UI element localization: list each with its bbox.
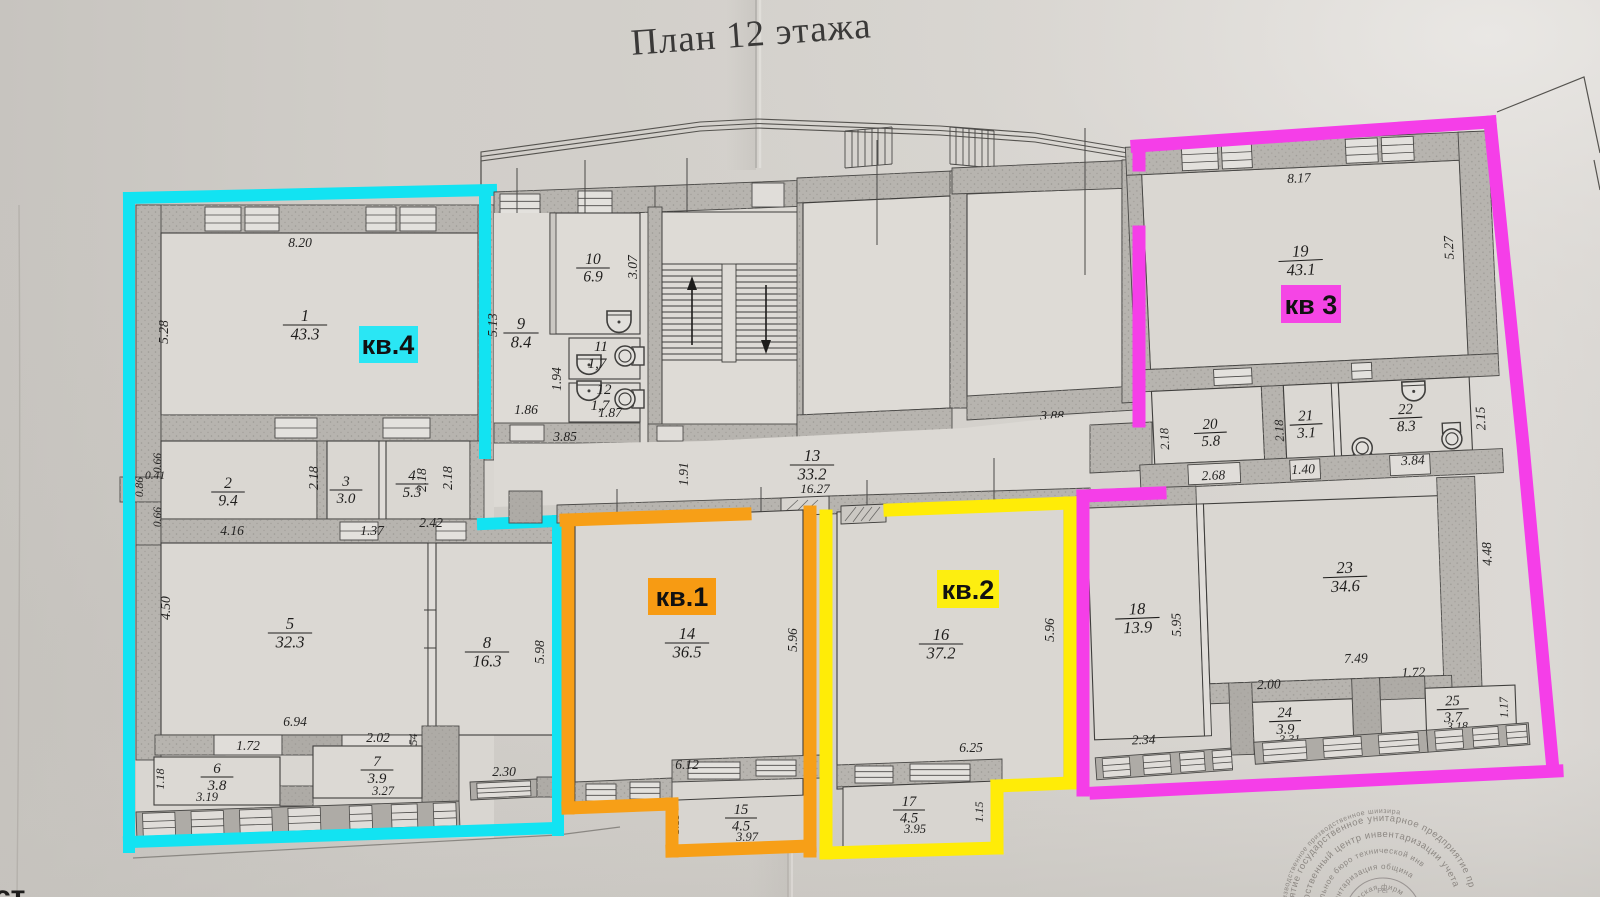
svg-text:6: 6 [213, 761, 221, 777]
svg-text:кв 3: кв 3 [1285, 290, 1338, 320]
svg-text:22: 22 [1398, 402, 1414, 419]
svg-text:5.13: 5.13 [485, 313, 500, 337]
svg-text:16.27: 16.27 [800, 481, 830, 496]
svg-text:23: 23 [1336, 558, 1353, 578]
svg-text:3.84: 3.84 [1400, 452, 1426, 468]
svg-text:4.48: 4.48 [1479, 542, 1495, 566]
svg-text:2.15: 2.15 [1472, 406, 1488, 431]
svg-text:25: 25 [1445, 693, 1460, 709]
svg-text:3.07: 3.07 [625, 254, 640, 280]
svg-text:5.98: 5.98 [532, 640, 547, 664]
svg-text:2.30: 2.30 [492, 764, 516, 779]
svg-text:2.18: 2.18 [1157, 427, 1172, 450]
svg-text:4.50: 4.50 [158, 596, 173, 620]
svg-text:7.49: 7.49 [1344, 650, 1368, 666]
svg-text:2.18: 2.18 [1272, 419, 1287, 442]
svg-text:кв.4: кв.4 [362, 330, 415, 360]
svg-text:5: 5 [286, 614, 294, 633]
svg-text:1.18: 1.18 [153, 769, 167, 790]
svg-text:14: 14 [679, 624, 696, 643]
svg-text:12: 12 [597, 382, 613, 398]
svg-text:кв.2: кв.2 [942, 575, 995, 605]
svg-text:20: 20 [1202, 416, 1218, 433]
svg-text:9.4: 9.4 [218, 493, 238, 510]
svg-text:0.86: 0.86 [134, 477, 146, 497]
svg-text:16.3: 16.3 [473, 652, 502, 671]
svg-text:5.28: 5.28 [156, 320, 171, 344]
svg-text:43.1: 43.1 [1286, 259, 1316, 279]
svg-text:1,7: 1,7 [588, 356, 608, 372]
svg-text:37.2: 37.2 [926, 644, 956, 663]
svg-text:16: 16 [933, 625, 950, 644]
svg-text:2.68: 2.68 [1201, 467, 1226, 483]
svg-text:8.4: 8.4 [511, 333, 532, 352]
svg-text:11: 11 [594, 339, 608, 355]
svg-text:3.85: 3.85 [552, 429, 577, 444]
svg-text:5.96: 5.96 [785, 628, 800, 652]
svg-text:1.15: 1.15 [972, 802, 986, 823]
svg-text:8.20: 8.20 [288, 235, 312, 250]
svg-text:1.17: 1.17 [1496, 696, 1511, 718]
svg-text:3.0: 3.0 [336, 491, 356, 507]
svg-text:1.40: 1.40 [1291, 461, 1316, 477]
svg-text:8.3: 8.3 [1397, 418, 1416, 435]
svg-text:6.12: 6.12 [675, 757, 699, 772]
svg-text:13: 13 [804, 446, 821, 465]
svg-text:9: 9 [517, 314, 525, 333]
svg-text:5.96: 5.96 [1042, 618, 1057, 642]
svg-text:5.95: 5.95 [1168, 613, 1184, 637]
svg-text:21: 21 [1298, 408, 1314, 425]
svg-text:13.9: 13.9 [1123, 617, 1153, 637]
svg-text:6.25: 6.25 [959, 740, 983, 755]
svg-text:36.5: 36.5 [672, 643, 702, 662]
svg-text:5.8: 5.8 [1201, 433, 1221, 450]
svg-text:2.34: 2.34 [1132, 732, 1156, 748]
svg-text:2: 2 [224, 475, 232, 492]
svg-text:18: 18 [1128, 599, 1146, 619]
svg-text:5.27: 5.27 [1441, 234, 1457, 260]
svg-text:кв.1: кв.1 [656, 582, 709, 612]
svg-text:32.3: 32.3 [275, 633, 305, 652]
svg-text:3.19: 3.19 [195, 790, 219, 804]
svg-text:3.95: 3.95 [903, 822, 926, 836]
svg-text:15: 15 [734, 802, 749, 818]
svg-text:1.37: 1.37 [360, 523, 385, 538]
svg-text:17: 17 [902, 794, 917, 810]
svg-text:8.17: 8.17 [1287, 170, 1313, 186]
svg-text:ст: ст [0, 880, 25, 897]
svg-text:2.18: 2.18 [306, 466, 321, 490]
svg-text:2.02: 2.02 [366, 730, 390, 745]
svg-text:1.87: 1.87 [598, 405, 623, 420]
svg-text:19: 19 [1292, 241, 1309, 261]
svg-text:2.18: 2.18 [414, 468, 429, 492]
svg-text:1.91: 1.91 [676, 462, 691, 486]
svg-text:6.94: 6.94 [283, 714, 307, 729]
svg-text:3: 3 [341, 474, 350, 490]
svg-text:24: 24 [1277, 705, 1292, 721]
svg-text:2.00: 2.00 [1257, 676, 1281, 692]
svg-text:1.94: 1.94 [549, 367, 564, 391]
svg-text:8: 8 [483, 633, 492, 652]
svg-text:3.1: 3.1 [1296, 425, 1316, 442]
svg-text:1.72: 1.72 [236, 738, 260, 753]
svg-text:1: 1 [301, 306, 309, 325]
svg-text:34.6: 34.6 [1330, 576, 1361, 596]
svg-text:0.41: 0.41 [145, 470, 165, 482]
svg-text:43.3: 43.3 [291, 325, 320, 344]
svg-text:4.16: 4.16 [220, 523, 244, 538]
svg-text:2.42: 2.42 [419, 515, 443, 530]
svg-text:6.9: 6.9 [583, 269, 603, 286]
svg-text:10: 10 [585, 251, 601, 268]
svg-text:Рег: Рег [1377, 886, 1389, 895]
svg-text:3.27: 3.27 [371, 784, 395, 798]
svg-text:1.86: 1.86 [514, 402, 538, 417]
svg-text:2.18: 2.18 [440, 466, 455, 490]
